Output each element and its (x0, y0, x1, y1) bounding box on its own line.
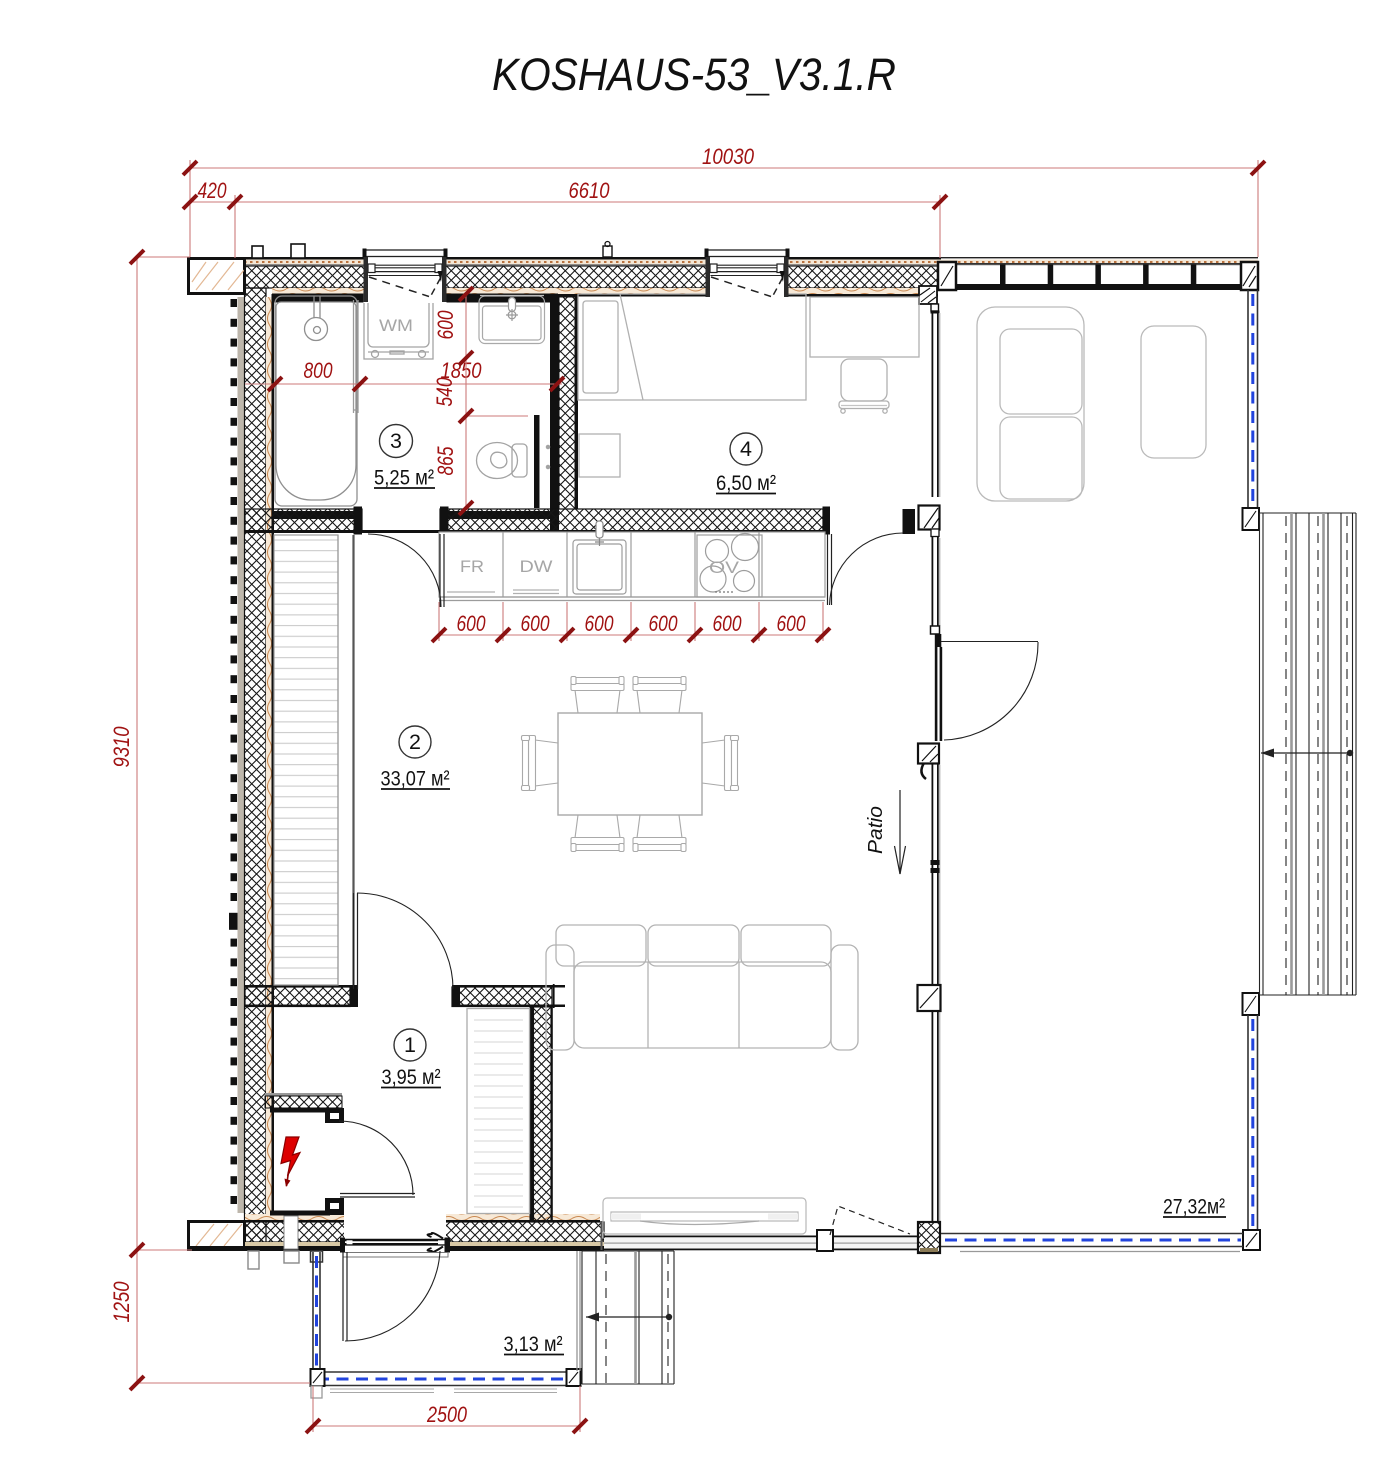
svg-text:600: 600 (433, 310, 458, 339)
svg-text:3,95 м²: 3,95 м² (382, 1065, 441, 1089)
svg-text:9310: 9310 (109, 726, 134, 767)
svg-text:6610: 6610 (569, 178, 610, 203)
svg-text:Patio: Patio (865, 806, 887, 854)
svg-text:600: 600 (585, 611, 614, 636)
svg-text:DW: DW (520, 557, 553, 576)
svg-text:33,07 м²: 33,07 м² (381, 767, 450, 791)
svg-text:2500: 2500 (426, 1402, 467, 1427)
svg-text:WM: WM (379, 316, 413, 335)
svg-text:3,13 м²: 3,13 м² (504, 1332, 563, 1356)
svg-text:1250: 1250 (109, 1281, 134, 1322)
svg-text:5,25 м²: 5,25 м² (374, 466, 434, 490)
svg-text:600: 600 (649, 611, 678, 636)
svg-text:600: 600 (521, 611, 550, 636)
svg-text:1: 1 (404, 1033, 416, 1057)
svg-text:540: 540 (432, 377, 457, 406)
svg-text:3: 3 (390, 429, 402, 453)
svg-text:420: 420 (198, 178, 227, 203)
svg-text:800: 800 (304, 358, 333, 383)
svg-text:2: 2 (409, 730, 421, 754)
svg-text:600: 600 (777, 611, 806, 636)
svg-text:600: 600 (457, 611, 486, 636)
svg-text:865: 865 (433, 446, 458, 475)
svg-text:4: 4 (740, 437, 752, 461)
svg-text:10030: 10030 (702, 144, 754, 169)
svg-text:KOSHAUS-53_V3.1.R: KOSHAUS-53_V3.1.R (492, 49, 896, 100)
svg-text:27,32м²: 27,32м² (1163, 1195, 1225, 1219)
svg-text:OV: OV (709, 558, 740, 577)
svg-text:FR: FR (460, 557, 484, 576)
svg-text:6,50 м²: 6,50 м² (716, 471, 776, 495)
svg-text:600: 600 (713, 611, 742, 636)
